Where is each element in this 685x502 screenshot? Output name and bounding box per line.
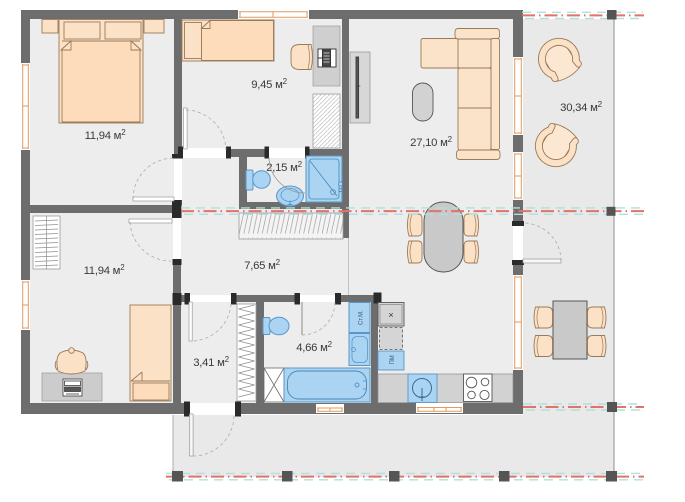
svg-text:4,66 м2: 4,66 м2 [296, 340, 332, 354]
svg-text:27,10 м2: 27,10 м2 [410, 135, 452, 149]
svg-text:2,15 м2: 2,15 м2 [266, 160, 302, 174]
svg-text:3,41 м2: 3,41 м2 [193, 355, 229, 369]
svg-text:30,34 м2: 30,34 м2 [560, 100, 602, 114]
svg-text:11,94 м2: 11,94 м2 [84, 263, 126, 277]
svg-text:9,45 м2: 9,45 м2 [251, 77, 287, 91]
svg-text:11,94 м2: 11,94 м2 [85, 128, 127, 142]
svg-text:Ст.М.: Ст.М. [359, 310, 365, 325]
svg-text:7,65 м2: 7,65 м2 [244, 258, 280, 272]
svg-text:×: × [388, 310, 393, 320]
svg-text:ПМ: ПМ [390, 355, 396, 364]
